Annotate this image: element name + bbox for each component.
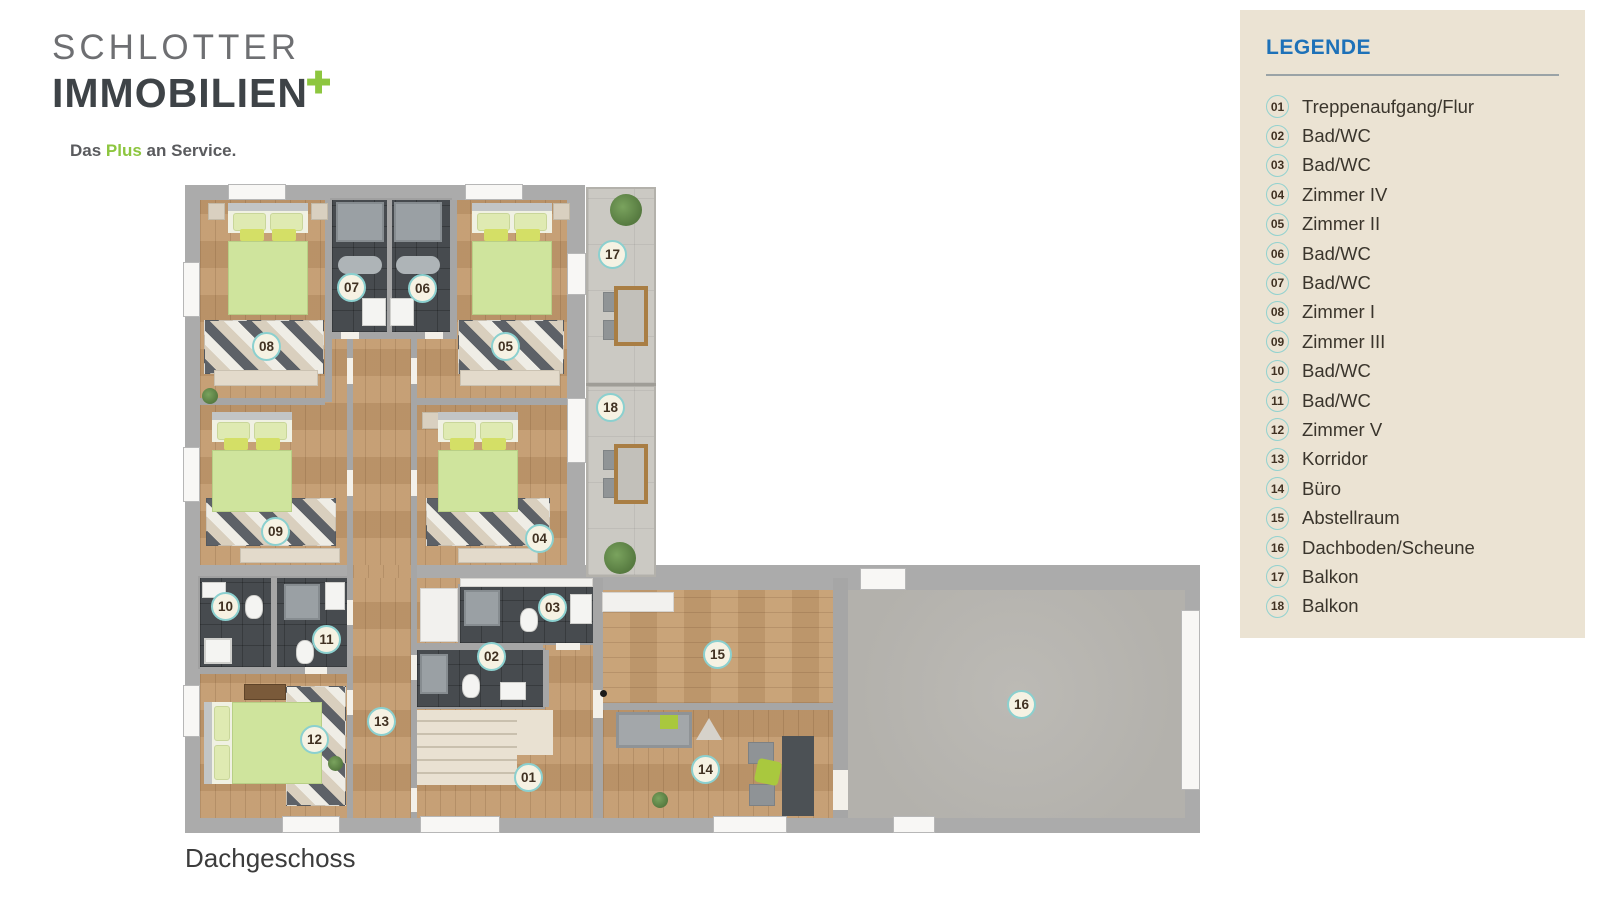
wall-room05-04 [417,398,567,405]
sink-bath02 [500,682,526,700]
door-bath11 [347,600,353,625]
door-room16-west [833,770,848,810]
legend-item-number: 17 [1266,565,1289,588]
window-east-room16 [1181,610,1200,790]
sink-bath03 [570,594,592,624]
legend-item-label: Zimmer V [1302,419,1382,441]
desk-room14 [782,736,814,816]
room-marker-11: 11 [312,625,341,654]
nightstand-room05-right [553,203,570,220]
legend-panel: LEGENDE 01Treppenaufgang/Flur02Bad/WC03B… [1240,10,1585,638]
room-marker-15: 15 [703,640,732,669]
sink-bath06 [390,298,414,326]
plus-icon: ✚ [306,67,332,100]
wall-room08-east [325,200,332,402]
legend-item-number: 13 [1266,448,1289,471]
page: SCHLOTTER IMMOBILIEN✚ Das Plus an Servic… [0,0,1600,900]
nightstand-room04-left [422,412,439,429]
legend-item-13: 13Korridor [1266,445,1585,474]
tagline-post: an Service. [142,141,237,160]
brand-line2-text: IMMOBILIEN [52,70,308,116]
door-room09 [347,470,353,496]
legend-item-label: Zimmer IV [1302,184,1387,206]
plant-room09 [202,388,218,404]
door-bath03 [556,643,580,650]
legend-item-label: Korridor [1302,448,1368,470]
brand-line1: SCHLOTTER [52,28,334,68]
shower-bath03 [464,590,500,626]
vanity-bath06 [396,256,440,274]
window-west-1 [183,262,200,317]
room-marker-16: 16 [1007,690,1036,719]
door-bath11-south [305,667,327,674]
legend-item-08: 08Zimmer I [1266,298,1585,327]
legend-item-number: 14 [1266,477,1289,500]
legend-item-15: 15Abstellraum [1266,503,1585,532]
legend-item-label: Büro [1302,478,1341,500]
legend-item-number: 06 [1266,242,1289,265]
legend-item-label: Treppenaufgang/Flur [1302,96,1474,118]
staircase [417,710,517,785]
legend-item-number: 15 [1266,507,1289,530]
sideboard-room09 [240,548,340,563]
door-room04 [411,470,417,496]
wardrobe-room12 [244,684,286,700]
legend-item-label: Balkon [1302,566,1359,588]
toilet-bath02 [462,674,480,698]
legend-item-number: 05 [1266,213,1289,236]
legend-item-02: 02Bad/WC [1266,121,1585,150]
door-hall01 [411,788,417,812]
shower-bath06 [394,202,442,242]
legend-item-label: Bad/WC [1302,272,1371,294]
legend-item-number: 09 [1266,330,1289,353]
legend-item-11: 11Bad/WC [1266,386,1585,415]
legend-item-label: Bad/WC [1302,154,1371,176]
closet-room15 [602,592,674,612]
plant-room14 [652,792,668,808]
legend-item-number: 11 [1266,389,1289,412]
legend-list: 01Treppenaufgang/Flur02Bad/WC03Bad/WC04Z… [1266,92,1585,621]
legend-item-label: Abstellraum [1302,507,1400,529]
legend-item-number: 03 [1266,154,1289,177]
shower-bath07 [336,202,384,242]
closet-hall-top [460,578,593,587]
corridor-bridge-floor [353,565,411,578]
legend-item-label: Bad/WC [1302,125,1371,147]
sofa-cushion-room14 [660,715,678,729]
legend-item-number: 16 [1266,536,1289,559]
toilet-bath03 [520,608,538,632]
toilet-bath11 [296,640,314,664]
legend-item-05: 05Zimmer II [1266,210,1585,239]
legend-item-number: 10 [1266,360,1289,383]
window-north-2 [465,184,523,200]
room-marker-04: 04 [525,524,554,553]
door-room08 [347,358,353,384]
tagline-pre: Das [70,141,106,160]
legend-item-label: Bad/WC [1302,243,1371,265]
legend-item-12: 12Zimmer V [1266,415,1585,444]
sideboard-room04 [458,548,538,563]
room-marker-12: 12 [300,725,329,754]
room-marker-09: 09 [261,517,290,546]
sofa-room14 [616,712,692,748]
floor-caption: Dachgeschoss [185,843,356,874]
legend-item-label: Zimmer II [1302,213,1380,235]
plant-balcony18 [604,542,636,574]
room-marker-18: 18 [596,393,625,422]
legend-item-label: Balkon [1302,595,1359,617]
legend-item-09: 09Zimmer III [1266,327,1585,356]
window-south-1 [282,816,340,833]
legend-divider [1266,74,1559,76]
legend-item-17: 17Balkon [1266,562,1585,591]
wall-corridor-west [347,339,353,818]
window-north-1 [228,184,286,200]
room-marker-03: 03 [538,593,567,622]
room-marker-10: 10 [211,592,240,621]
sideboard-room05 [460,370,560,386]
wall-room15-14 [603,703,833,710]
legend-item-number: 12 [1266,418,1289,441]
legend-item-16: 16Dachboden/Scheune [1266,533,1585,562]
tagline-highlight: Plus [106,141,142,160]
sideboard-room08 [214,370,318,386]
balcony-divider [586,383,656,386]
door-balcony-17 [567,253,586,295]
door-handle-dot [600,690,607,697]
room-marker-08: 08 [252,332,281,361]
legend-title: LEGENDE [1266,36,1559,60]
legend-item-number: 18 [1266,595,1289,618]
shower-bath02 [420,654,448,694]
legend-item-number: 08 [1266,301,1289,324]
bed-room08 [228,203,308,315]
legend-item-10: 10Bad/WC [1266,357,1585,386]
room-marker-17: 17 [598,240,627,269]
sink-bath11 [325,582,345,610]
wall-bath10-11 [271,578,277,667]
door-room12 [347,690,353,715]
window-west-3 [183,685,200,737]
room-marker-05: 05 [491,332,520,361]
nightstand-room08-left [208,203,225,220]
room-marker-02: 02 [477,642,506,671]
legend-item-number: 02 [1266,125,1289,148]
legend-item-label: Zimmer III [1302,331,1385,353]
legend-item-04: 04Zimmer IV [1266,180,1585,209]
brand-tagline: Das Plus an Service. [70,141,334,161]
wall-room08-09 [200,398,325,405]
room-marker-01: 01 [514,763,543,792]
plant-room12 [328,756,343,771]
door-room16-south [893,816,935,833]
legend-item-07: 07Bad/WC [1266,268,1585,297]
desk-chair-room14 [754,758,782,786]
stair-landing [517,710,553,755]
legend-item-label: Bad/WC [1302,360,1371,382]
door-room05 [411,358,417,384]
legend-item-number: 04 [1266,183,1289,206]
legend-item-18: 18Balkon [1266,592,1585,621]
window-west-2 [183,447,200,502]
door-bath06 [425,332,443,339]
legend-item-number: 07 [1266,272,1289,295]
sink-bath07 [362,298,386,326]
shower-bath11 [284,584,320,620]
closet-bath03 [420,588,458,642]
bed-room05 [472,203,552,315]
legend-item-06: 06Bad/WC [1266,239,1585,268]
wall-room05-west [450,200,457,332]
legend-item-14: 14Büro [1266,474,1585,503]
room-marker-06: 06 [408,274,437,303]
nightstand-room08-right [311,203,328,220]
legend-item-number: 01 [1266,95,1289,118]
door-room16-north [860,568,906,590]
door-balcony-18 [567,398,586,463]
legend-item-03: 03Bad/WC [1266,151,1585,180]
legend-item-label: Dachboden/Scheune [1302,537,1475,559]
shower-bath10 [204,638,232,664]
room-marker-14: 14 [691,755,720,784]
legend-item-label: Zimmer I [1302,301,1375,323]
door-bath07 [341,332,359,339]
window-south-2 [713,816,787,833]
brand-line2: IMMOBILIEN✚ [52,70,334,117]
bed-room09 [212,412,292,512]
legend-item-01: 01Treppenaufgang/Flur [1266,92,1585,121]
table-balcony17 [614,286,648,346]
guest-chair-2-room14 [749,784,775,806]
toilet-bath10 [245,595,263,619]
plant-balcony17 [610,194,642,226]
door-bath02 [411,655,417,680]
room-marker-13: 13 [367,707,396,736]
wall-bath02-east [543,650,549,707]
legend-item-label: Bad/WC [1302,390,1371,412]
entry-door [420,816,500,833]
easel-room14 [696,718,722,740]
brand-logo: SCHLOTTER IMMOBILIEN✚ Das Plus an Servic… [52,28,334,161]
room-marker-07: 07 [337,273,366,302]
bed-room04 [438,412,518,512]
vanity-bath07 [338,256,382,274]
table-balcony18 [614,444,648,504]
